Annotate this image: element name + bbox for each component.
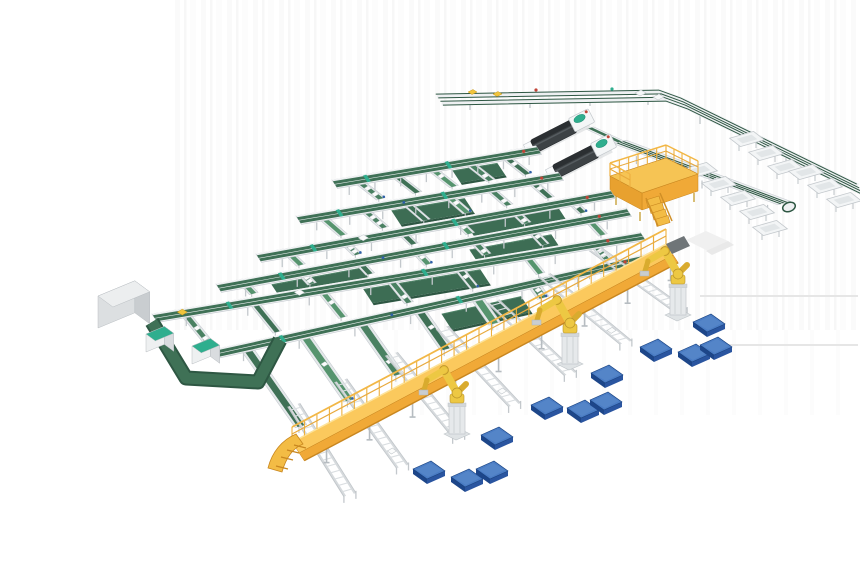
sorting-system-illustration bbox=[0, 0, 860, 580]
factory-render bbox=[0, 0, 860, 580]
processing-machines bbox=[522, 109, 618, 184]
ghost-equipment bbox=[686, 231, 734, 255]
chute-bins bbox=[683, 131, 860, 240]
